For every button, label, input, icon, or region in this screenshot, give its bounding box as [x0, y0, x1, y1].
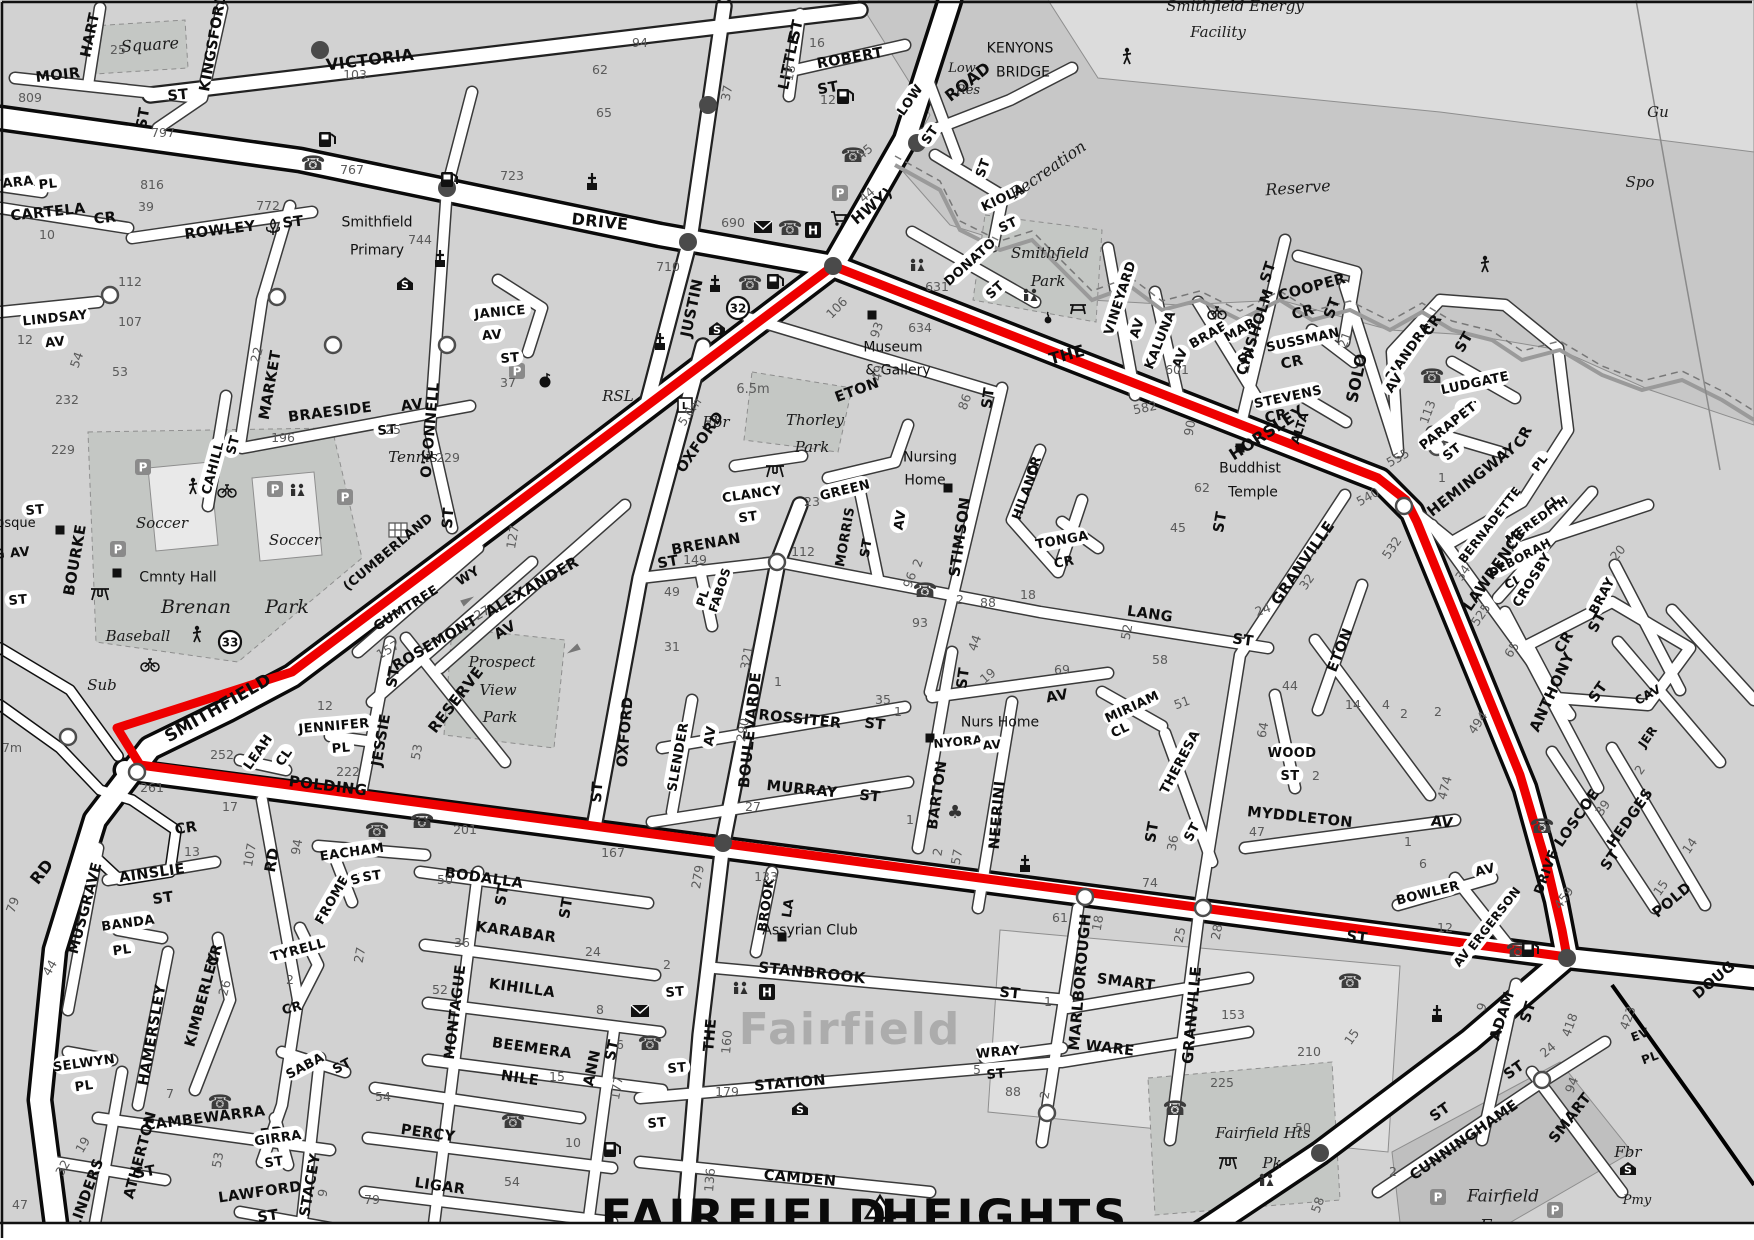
svg-text:25: 25 — [1171, 926, 1189, 944]
svg-text:Res: Res — [955, 83, 980, 98]
map-label: 25 — [1171, 926, 1189, 944]
svg-text:62: 62 — [1194, 480, 1210, 495]
svg-text:27: 27 — [745, 799, 761, 814]
svg-text:36: 36 — [1164, 834, 1182, 852]
map-label: 52 — [432, 982, 448, 997]
map-label: 57 — [948, 848, 966, 866]
hospital-icon: H — [805, 222, 821, 238]
map-label: 45 — [1170, 520, 1186, 535]
map-label: 47 — [1249, 824, 1265, 839]
svg-text:261: 261 — [140, 780, 164, 795]
svg-text:KENYONS: KENYONS — [987, 40, 1054, 56]
map-label: 18 — [1020, 587, 1036, 602]
map-label: 8 — [596, 1002, 604, 1017]
map-label: Res — [955, 83, 980, 98]
svg-text:☎: ☎ — [1338, 969, 1363, 993]
svg-text:744: 744 — [408, 232, 432, 247]
map-label: 44 — [1282, 678, 1298, 693]
svg-text:♣: ♣ — [947, 802, 963, 823]
map-label: Park — [482, 708, 518, 726]
svg-text:797: 797 — [151, 125, 175, 140]
map-label: ST — [1231, 631, 1254, 650]
map-label: 710 — [656, 259, 680, 274]
svg-text:☎: ☎ — [501, 1109, 526, 1133]
map-label: 24 — [585, 944, 601, 959]
map-label: 2 — [1389, 1164, 1397, 1179]
svg-text:17: 17 — [222, 799, 238, 814]
map-label: 12 — [317, 698, 333, 713]
map-label: 25 — [110, 42, 126, 57]
svg-text:5: 5 — [973, 1062, 981, 1077]
map-label: ST — [859, 788, 882, 806]
svg-text:2: 2 — [1312, 768, 1320, 783]
svg-text:ST: ST — [282, 213, 305, 231]
phone-icon: ☎ — [365, 818, 390, 842]
map-label: AV — [1430, 814, 1454, 832]
roundabout — [102, 287, 118, 303]
svg-text:631: 631 — [925, 279, 949, 294]
svg-text:52: 52 — [432, 982, 448, 997]
svg-text:1: 1 — [1044, 994, 1052, 1009]
svg-text:12: 12 — [820, 92, 836, 107]
svg-text:ST: ST — [1280, 769, 1299, 784]
svg-text:94: 94 — [632, 35, 648, 50]
map-label: 210 — [1297, 1044, 1321, 1059]
svg-text:1: 1 — [906, 812, 914, 827]
svg-text:S: S — [1624, 1164, 1632, 1177]
svg-text:ST: ST — [589, 781, 607, 803]
svg-text:ST: ST — [667, 1060, 687, 1077]
svg-text:37: 37 — [718, 84, 736, 102]
svg-text:ST: ST — [665, 984, 685, 1001]
svg-text:50: 50 — [437, 872, 453, 887]
svg-text:ST: ST — [954, 667, 973, 690]
svg-text:54: 54 — [504, 1174, 520, 1189]
svg-text:PL: PL — [74, 1078, 95, 1095]
svg-text:ST: ST — [152, 889, 175, 908]
svg-text:90: 90 — [1181, 419, 1199, 437]
svg-text:232: 232 — [55, 392, 79, 407]
map-label: ST — [979, 387, 998, 410]
svg-text:Square: Square — [120, 33, 179, 56]
svg-text:47: 47 — [12, 1197, 28, 1212]
map-label: ST — [440, 507, 458, 529]
map-label: 90 — [1181, 419, 1199, 437]
map-label: 1 — [774, 674, 782, 689]
roundabout — [1195, 900, 1211, 916]
map-label: 65 — [596, 105, 612, 120]
roundabout — [1077, 889, 1093, 905]
post-icon — [754, 221, 772, 233]
building-square-icon — [56, 526, 65, 535]
svg-text:196: 196 — [271, 430, 295, 445]
map-label: 229 — [436, 450, 460, 465]
map-label: 107 — [118, 314, 142, 329]
svg-text:107: 107 — [118, 314, 142, 329]
svg-text:S: S — [713, 324, 721, 337]
map-label: LA — [780, 898, 798, 919]
map-label: Soccer — [136, 514, 189, 532]
map-label: Prospect — [468, 653, 537, 671]
map-label: 225 — [1210, 1075, 1234, 1090]
map-label: 772 — [256, 198, 280, 213]
map-label: 7m — [2, 740, 22, 755]
map-label: Temple — [1227, 484, 1278, 500]
map-label: 62 — [592, 62, 608, 77]
svg-text:Park: Park — [794, 438, 830, 456]
svg-text:ST: ST — [8, 592, 28, 609]
svg-text:31: 31 — [664, 639, 680, 654]
svg-text:25: 25 — [110, 42, 126, 57]
map-label: 222 — [336, 764, 360, 779]
map-label: Spo — [1626, 173, 1655, 191]
svg-text:133: 133 — [754, 869, 778, 884]
map-label: 93 — [912, 615, 928, 630]
svg-text:☎: ☎ — [638, 1031, 663, 1055]
roundabout — [1039, 1105, 1055, 1121]
route-shield-32: 32 — [727, 297, 749, 319]
svg-text:37: 37 — [500, 375, 516, 390]
map-label: 149 — [683, 552, 707, 567]
svg-text:149: 149 — [683, 552, 707, 567]
svg-text:153: 153 — [1221, 1007, 1245, 1022]
svg-text:ST: ST — [999, 985, 1022, 1003]
svg-text:Museum: Museum — [863, 339, 922, 355]
svg-text:62: 62 — [592, 62, 608, 77]
svg-text:Soccer: Soccer — [269, 531, 322, 549]
parking-icon: P — [1547, 1202, 1563, 1218]
map-label: 1 — [1044, 994, 1052, 1009]
building-square-icon — [113, 569, 122, 578]
svg-text:210: 210 — [1297, 1044, 1321, 1059]
svg-text:H: H — [808, 224, 818, 238]
svg-text:☎: ☎ — [1530, 814, 1555, 838]
map-label: 39 — [138, 199, 154, 214]
map-label: Facility — [1189, 23, 1246, 41]
map-label: Baseball — [105, 627, 171, 645]
svg-text:634: 634 — [908, 320, 932, 335]
svg-text:39: 39 — [138, 199, 154, 214]
map-label: Pk — [1261, 1154, 1281, 1172]
map-label: Gu — [1647, 103, 1669, 121]
map-label: Park — [794, 438, 830, 456]
phone-icon: ☎ — [1163, 1096, 1188, 1120]
svg-text:690: 690 — [721, 215, 745, 230]
svg-text:WOOD: WOOD — [1268, 746, 1317, 761]
map-label: Assyrian Club — [762, 922, 858, 938]
map-label: osque — [0, 516, 36, 531]
svg-text:☎: ☎ — [365, 818, 390, 842]
svg-text:Fairfield: Fairfield — [739, 1004, 962, 1055]
map-label: 1 — [906, 812, 914, 827]
map-label: Fairfield — [1466, 1186, 1539, 1206]
map-label: 723 — [500, 168, 524, 183]
svg-text:179: 179 — [715, 1084, 739, 1099]
svg-text:Park: Park — [264, 596, 309, 618]
map-label: 2 — [956, 592, 964, 607]
svg-text:1: 1 — [1438, 470, 1446, 485]
svg-text:Tennis: Tennis — [388, 448, 438, 466]
svg-text:AV: AV — [481, 327, 502, 344]
map-label: 6 — [616, 1037, 624, 1052]
map-label: 160 — [718, 1029, 735, 1054]
svg-text:Thorley: Thorley — [786, 411, 845, 429]
svg-text:229: 229 — [51, 442, 75, 457]
map-label: 88 — [1005, 1084, 1021, 1099]
svg-text:13: 13 — [184, 844, 200, 859]
map-label: Pmy — [1622, 1193, 1652, 1208]
phone-icon: ☎ — [301, 151, 326, 175]
svg-text:☎: ☎ — [301, 151, 326, 175]
map-label: 767 — [340, 162, 364, 177]
roundabout — [769, 554, 785, 570]
map-label: 54 — [504, 1174, 520, 1189]
svg-text:ST: ST — [864, 716, 887, 734]
building-square-icon — [868, 311, 877, 320]
svg-text:☎: ☎ — [738, 271, 763, 295]
svg-text:18: 18 — [1089, 914, 1107, 932]
map-label: Tennis — [388, 448, 438, 466]
svg-text:S: S — [796, 1104, 804, 1117]
svg-text:54: 54 — [375, 1089, 391, 1104]
svg-text:2: 2 — [663, 957, 671, 972]
map-label: Museum — [863, 339, 922, 355]
svg-text:CR: CR — [93, 209, 117, 227]
svg-text:PL: PL — [331, 740, 351, 757]
svg-text:Facility: Facility — [1189, 23, 1246, 41]
svg-text:1: 1 — [774, 674, 782, 689]
svg-text:P: P — [114, 543, 123, 557]
svg-text:P: P — [836, 187, 845, 201]
svg-text:74: 74 — [1142, 875, 1158, 890]
map-canvas[interactable]: ☎☎☎☎☎☎☎☎☎☎☎☎☎☎☎HHPPPPPPPPSSSS♣L3233MOIRS… — [0, 0, 1754, 1240]
svg-text:103: 103 — [343, 67, 367, 82]
map-label: 1 — [1438, 470, 1446, 485]
roundabout — [1534, 1072, 1550, 1088]
map-label: 601 — [1165, 362, 1189, 377]
svg-text:Prospect: Prospect — [468, 653, 537, 671]
svg-text:69: 69 — [1054, 662, 1070, 677]
svg-text:CR: CR — [174, 819, 199, 838]
svg-text:1: 1 — [1404, 834, 1412, 849]
svg-text:ST: ST — [859, 788, 882, 806]
svg-text:Sub: Sub — [87, 676, 117, 694]
svg-text:P: P — [1434, 1191, 1443, 1205]
map-label: 167 — [601, 845, 625, 860]
map-label: 25 — [385, 422, 401, 437]
map-label: ST — [1277, 766, 1304, 784]
svg-text:601: 601 — [1165, 362, 1189, 377]
svg-text:ST: ST — [979, 387, 998, 410]
map-label: 232 — [55, 392, 79, 407]
svg-text:Fairfield: Fairfield — [1466, 1186, 1539, 1206]
svg-text:Pmy: Pmy — [1622, 1193, 1652, 1208]
svg-text:53: 53 — [408, 743, 426, 761]
parking-icon: P — [267, 481, 283, 497]
map-label: 2 — [1312, 768, 1320, 783]
svg-text:P: P — [1551, 1204, 1560, 1218]
map-label: 2 — [663, 957, 671, 972]
svg-text:RSL: RSL — [601, 387, 634, 405]
svg-text:772: 772 — [256, 198, 280, 213]
map-label: 94 — [632, 35, 648, 50]
svg-text:7m: 7m — [2, 740, 22, 755]
svg-text:767: 767 — [340, 162, 364, 177]
map-label: 36 — [1164, 834, 1182, 852]
map-label: 12 — [1437, 920, 1453, 935]
svg-text:229: 229 — [436, 450, 460, 465]
phone-icon: ☎ — [738, 271, 763, 295]
svg-text:Low: Low — [947, 61, 976, 76]
map-label: Fbr — [1613, 1143, 1642, 1161]
svg-text:88: 88 — [1005, 1084, 1021, 1099]
map-label: Nurs Home — [961, 714, 1039, 730]
svg-text:160: 160 — [718, 1029, 735, 1054]
map-label: 13 — [184, 844, 200, 859]
map-label: Soccer — [269, 531, 322, 549]
map-label: 10 — [565, 1135, 581, 1150]
map-label: Low — [947, 61, 976, 76]
map-label: ST — [589, 781, 607, 803]
map-label: 54 — [375, 1089, 391, 1104]
svg-text:57: 57 — [948, 848, 966, 866]
roundabout — [269, 289, 285, 305]
map-label: 64 — [1254, 721, 1272, 739]
svg-text:PL: PL — [112, 942, 133, 959]
svg-text:24: 24 — [585, 944, 601, 959]
map-label: 5 — [973, 1062, 981, 1077]
svg-text:BRIDGE: BRIDGE — [996, 64, 1050, 80]
map-label: Smithfield — [1011, 244, 1089, 262]
map-label: 797 — [151, 125, 175, 140]
svg-text:14: 14 — [1345, 697, 1361, 712]
svg-text:Buddhist: Buddhist — [1219, 460, 1281, 476]
map-label: 88 — [980, 595, 996, 610]
map-label: 14 — [1345, 697, 1361, 712]
map-label: Home — [904, 472, 945, 488]
map-label: 12 — [820, 92, 836, 107]
svg-text:AV: AV — [400, 396, 424, 415]
svg-text:44: 44 — [1282, 678, 1298, 693]
svg-text:Fbr: Fbr — [1613, 1143, 1642, 1161]
svg-text:7: 7 — [166, 1086, 174, 1101]
svg-text:ST: ST — [167, 87, 190, 105]
svg-text:16: 16 — [809, 35, 825, 50]
svg-text:10: 10 — [565, 1135, 581, 1150]
svg-text:Baseball: Baseball — [105, 627, 171, 645]
svg-text:79: 79 — [364, 1192, 380, 1207]
map-label: KENYONS — [987, 40, 1054, 56]
svg-text:☎: ☎ — [778, 216, 803, 240]
map-label: Nursing — [903, 449, 957, 465]
svg-text:Gu: Gu — [1647, 103, 1669, 121]
map-label: 36 — [454, 935, 470, 950]
map-label: 2 — [286, 972, 294, 987]
map-label: 52 — [1118, 623, 1136, 641]
map-label: 112 — [118, 274, 142, 289]
map-label: 94 — [288, 838, 306, 856]
map-label: Buddhist — [1219, 460, 1281, 476]
svg-text:2: 2 — [1400, 706, 1408, 721]
map-label: BRIDGE — [996, 64, 1050, 80]
map-label: 252 — [210, 747, 234, 762]
svg-text:58: 58 — [1152, 652, 1168, 667]
svg-text:Fbr: Fbr — [701, 413, 730, 431]
svg-text:P: P — [139, 461, 148, 475]
svg-text:Temple: Temple — [1227, 484, 1278, 500]
svg-text:2: 2 — [956, 592, 964, 607]
map-label: 18 — [1089, 914, 1107, 932]
map-label: 37 — [500, 375, 516, 390]
map-label: 809 — [18, 90, 42, 105]
map-label: 16 — [809, 35, 825, 50]
svg-text:osque: osque — [0, 516, 36, 531]
svg-text:65: 65 — [596, 105, 612, 120]
map-label: 634 — [908, 320, 932, 335]
map-label: 10 — [39, 227, 55, 242]
svg-text:Park: Park — [1030, 272, 1066, 290]
map-label: 50 — [1295, 1120, 1311, 1135]
svg-text:23: 23 — [804, 494, 820, 509]
svg-text:ST: ST — [647, 1115, 667, 1132]
map-label: 631 — [925, 279, 949, 294]
svg-text:225: 225 — [1210, 1075, 1234, 1090]
map-label: Park — [264, 596, 309, 618]
map-label: ST — [282, 213, 305, 231]
svg-text:112: 112 — [791, 544, 815, 559]
svg-text:8: 8 — [596, 1002, 604, 1017]
svg-text:P: P — [341, 491, 350, 505]
svg-text:ST: ST — [738, 509, 759, 527]
map-label: View — [479, 681, 516, 699]
phone-icon: ☎ — [778, 216, 803, 240]
svg-text:Soccer: Soccer — [136, 514, 189, 532]
svg-text:710: 710 — [656, 259, 680, 274]
svg-text:PL: PL — [38, 176, 58, 193]
map-label: 69 — [1054, 662, 1070, 677]
svg-text:S: S — [401, 279, 409, 292]
post-icon — [631, 1005, 649, 1017]
svg-text:☎: ☎ — [410, 809, 435, 833]
map-label: 23 — [804, 494, 820, 509]
map-label: 744 — [408, 232, 432, 247]
map-label: 690 — [721, 215, 745, 230]
svg-text:10: 10 — [39, 227, 55, 242]
traffic-signal-dot — [679, 233, 697, 251]
map-label: Sub — [87, 676, 117, 694]
svg-text:THE: THE — [701, 1018, 720, 1052]
svg-text:AV: AV — [982, 737, 1002, 753]
svg-text:View: View — [479, 681, 516, 699]
map-label: 50 — [437, 872, 453, 887]
svg-text:Home: Home — [904, 472, 945, 488]
svg-text:12: 12 — [1437, 920, 1453, 935]
svg-text:2: 2 — [1434, 704, 1442, 719]
map-label: Fairfield — [739, 1004, 962, 1055]
map-label: 229 — [51, 442, 75, 457]
svg-text:167: 167 — [601, 845, 625, 860]
map-label: 79 — [364, 1192, 380, 1207]
svg-text:201: 201 — [453, 822, 477, 837]
map-label: Cmnty Hall — [139, 569, 216, 585]
map-label: Primary — [350, 242, 404, 258]
roundabout — [60, 729, 76, 745]
map-label: 2 — [1400, 706, 1408, 721]
svg-text:33: 33 — [222, 636, 239, 650]
map-label: 261 — [140, 780, 164, 795]
map-label: 1 — [894, 704, 902, 719]
svg-text:☎: ☎ — [1163, 1096, 1188, 1120]
